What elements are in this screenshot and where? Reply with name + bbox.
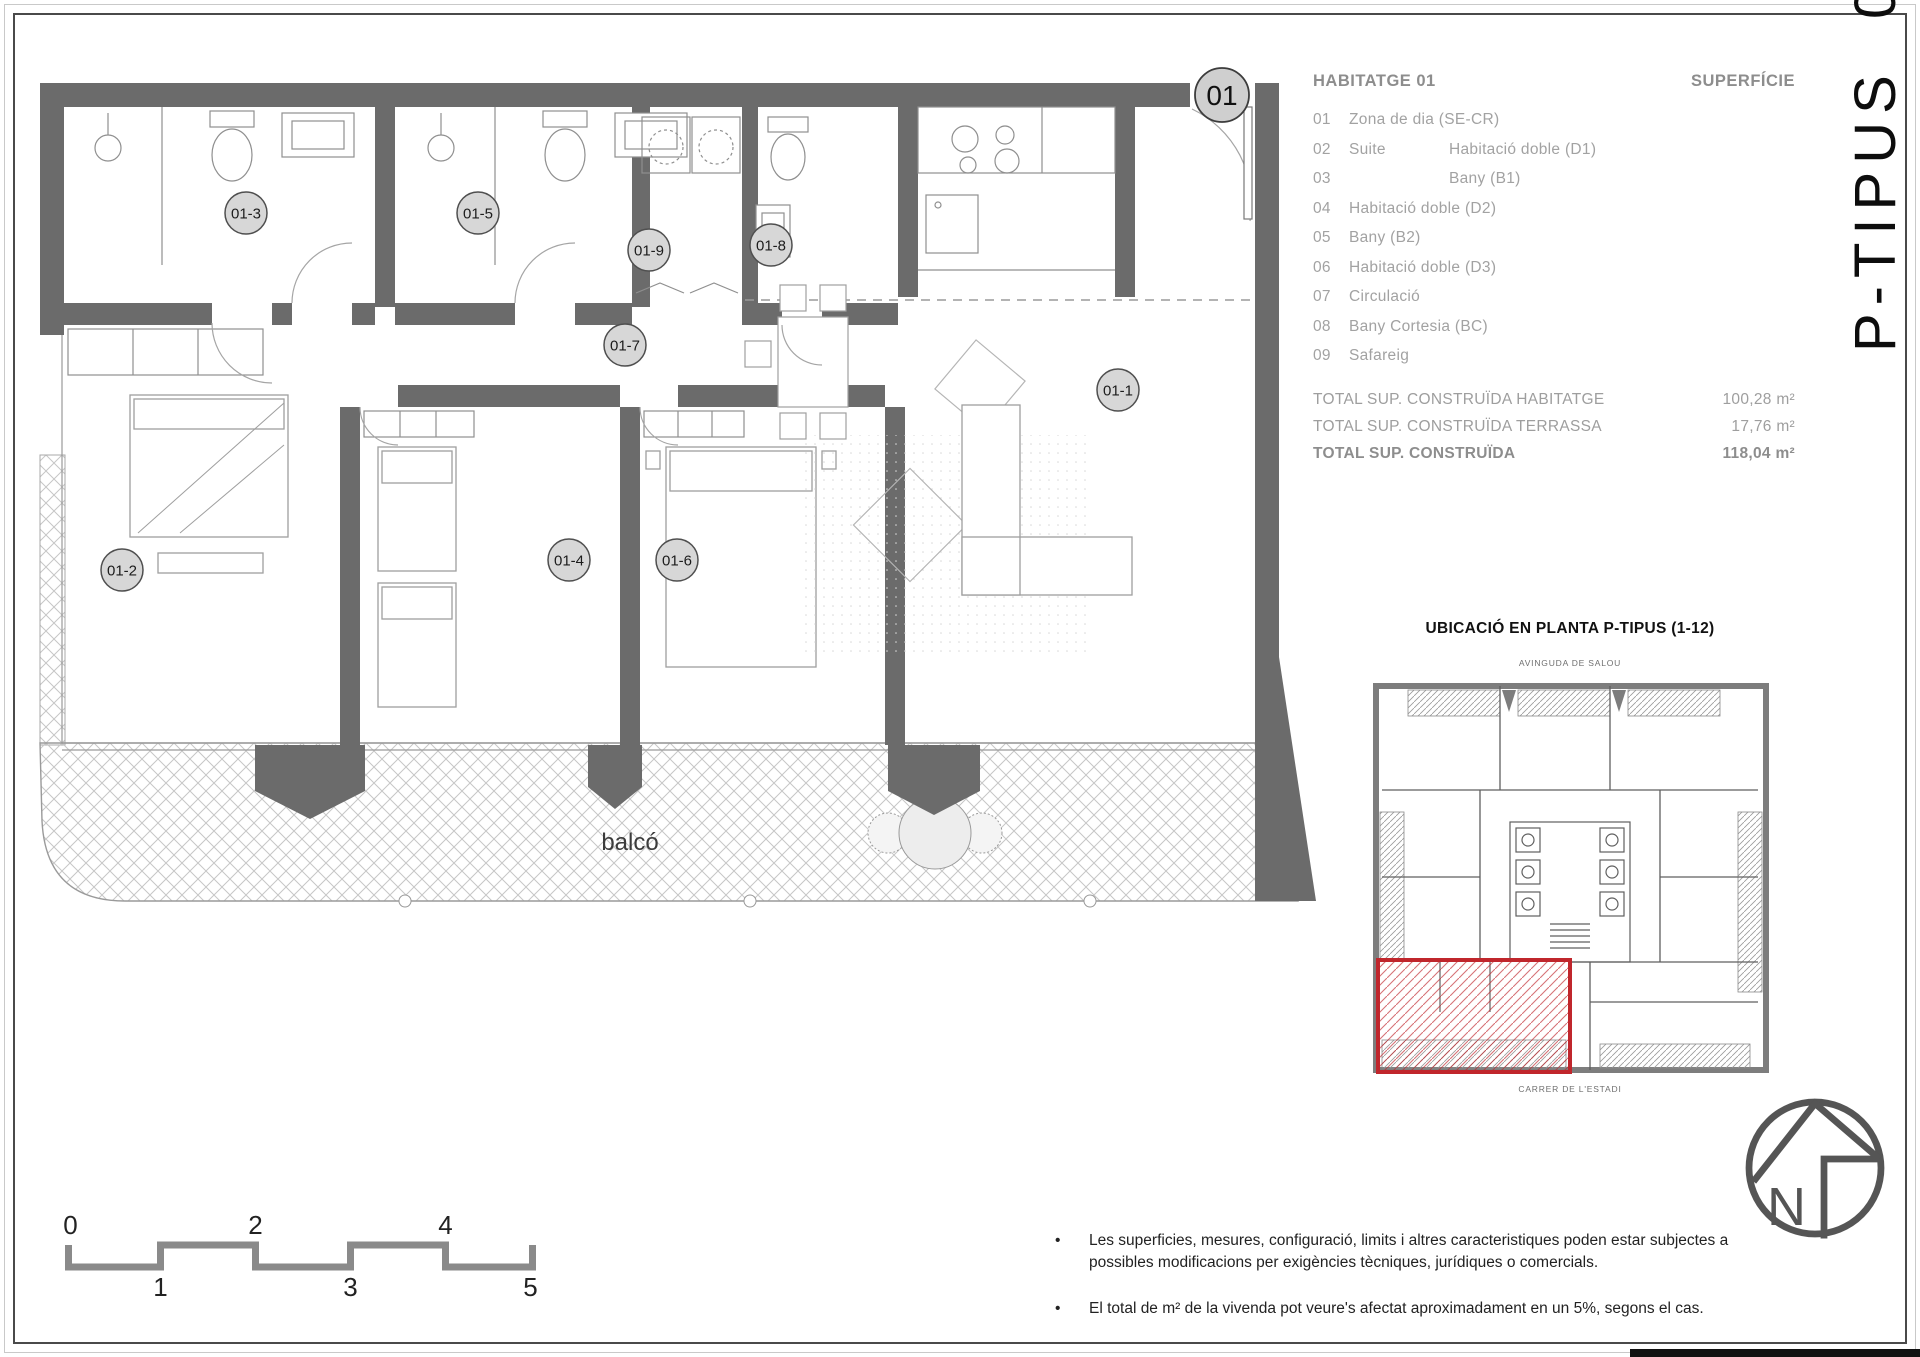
- item-num: 09: [1313, 347, 1349, 365]
- total-row-grand: TOTAL SUP. CONSTRUÏDA 118,04 m²: [1313, 445, 1795, 463]
- item-name: Habitació doble (D2): [1349, 200, 1449, 218]
- item-name: [1349, 170, 1449, 188]
- item-name2: [1449, 229, 1795, 247]
- item-num: 03: [1313, 170, 1349, 188]
- note-item: • Les superficies, mesures, configuració…: [1055, 1230, 1815, 1274]
- bottom-right-black-strip: [1630, 1349, 1920, 1357]
- legend-panel: HABITATGE 01 SUPERFÍCIE 01Zona de dia (S…: [1313, 72, 1795, 472]
- bedroom-d2-beds: [378, 447, 456, 707]
- legend-item: 05Bany (B2): [1313, 229, 1795, 247]
- superficie-header: SUPERFÍCIE: [1691, 72, 1795, 91]
- total-value: 118,04 m²: [1722, 445, 1795, 463]
- location-title: UBICACIÓ EN PLANTA P-TIPUS (1-12): [1350, 620, 1790, 638]
- room-tag: 01-4: [548, 539, 590, 581]
- item-name2: Bany (B1): [1449, 170, 1795, 188]
- room-tag-label: 01-5: [463, 205, 493, 222]
- legend-header: HABITATGE 01 SUPERFÍCIE: [1313, 72, 1795, 91]
- room-tag-label: 01-6: [662, 552, 692, 569]
- room-tag: 01-5: [457, 192, 499, 234]
- balcony-label: balcó: [601, 829, 658, 856]
- scale-bar-numbers: 0 2 4 1 3 5: [63, 1212, 537, 1302]
- highlighted-unit: [1378, 960, 1570, 1072]
- scale-num: 4: [438, 1212, 452, 1240]
- item-name2: [1449, 259, 1795, 277]
- room-tag: 01-2: [101, 549, 143, 591]
- item-name: Bany (B2): [1349, 229, 1449, 247]
- scale-num: 0: [63, 1212, 77, 1240]
- note-item: • El total de m² de la vivenda pot veure…: [1055, 1298, 1815, 1320]
- disclaimer-notes: • Les superficies, mesures, configuració…: [1055, 1230, 1815, 1344]
- legend-item: 08Bany Cortesia (BC): [1313, 318, 1795, 336]
- room-tag: 01-7: [604, 324, 646, 366]
- item-num: 04: [1313, 200, 1349, 218]
- room-tag: 01-8: [750, 224, 792, 266]
- room-tag-label: 01-7: [610, 337, 640, 354]
- item-name2: [1449, 347, 1795, 365]
- legend-item: 01Zona de dia (SE-CR): [1313, 111, 1795, 129]
- north-label: N: [1767, 1177, 1806, 1237]
- scale-bar-line: [69, 1245, 533, 1267]
- total-value: 100,28 m²: [1723, 391, 1796, 409]
- item-name2: [1449, 318, 1795, 336]
- railing-post: [744, 895, 756, 907]
- scale-num: 3: [343, 1272, 357, 1302]
- item-num: 06: [1313, 259, 1349, 277]
- location-mini-plan: [1360, 672, 1780, 1080]
- scale-num: 2: [248, 1212, 262, 1240]
- room-tag: 01-9: [628, 229, 670, 271]
- item-name2: [1449, 200, 1795, 218]
- apartment-floor-plan: 01-1 01-2 01-3 01-4 01-5 01-6 01-7 01-8: [30, 55, 1320, 915]
- room-tag-label: 01-3: [231, 205, 261, 222]
- sheet-title-vertical: P-TIPUS 01: [1842, 0, 1909, 352]
- total-label: TOTAL SUP. CONSTRUÏDA TERRASSA: [1313, 418, 1602, 436]
- item-name: Circulació: [1349, 288, 1449, 306]
- legend-item: 09Safareig: [1313, 347, 1795, 365]
- room-tag-label: 01-8: [756, 237, 786, 254]
- legend-item: 06Habitació doble (D3): [1313, 259, 1795, 277]
- note-text: El total de m² de la vivenda pot veure's…: [1089, 1298, 1789, 1320]
- total-row: TOTAL SUP. CONSTRUÏDA TERRASSA 17,76 m²: [1313, 418, 1795, 436]
- total-label: TOTAL SUP. CONSTRUÏDA: [1313, 445, 1515, 463]
- entry-unit-badge-label: 01: [1206, 80, 1237, 111]
- suite-bed: [130, 395, 288, 573]
- legend-items: 01Zona de dia (SE-CR) 02SuiteHabitació d…: [1313, 111, 1795, 365]
- item-name: Bany Cortesia (BC): [1349, 318, 1449, 336]
- legend-title: HABITATGE 01: [1313, 72, 1436, 91]
- legend-item: 02SuiteHabitació doble (D1): [1313, 141, 1795, 159]
- legend-totals: TOTAL SUP. CONSTRUÏDA HABITATGE 100,28 m…: [1313, 391, 1795, 463]
- room-tag-label: 01-9: [634, 242, 664, 259]
- item-num: 01: [1313, 111, 1349, 129]
- north-arrow-icon: N: [1740, 1093, 1890, 1243]
- room-tag: 01-3: [225, 192, 267, 234]
- total-value: 17,76 m²: [1731, 418, 1795, 436]
- legend-item: 07Circulació: [1313, 288, 1795, 306]
- floorplan-sheet: { "sheet": { "vertical_title": "P-TIPUS …: [0, 0, 1920, 1357]
- street-label-top: AVINGUDA DE SALOU: [1360, 658, 1780, 668]
- room-tag-label: 01-2: [107, 562, 137, 579]
- item-name2: [1449, 111, 1795, 129]
- bathroom-1-fixtures: [95, 107, 354, 265]
- room-tag-label: 01-1: [1103, 382, 1133, 399]
- item-name: Habitació doble (D3): [1349, 259, 1449, 277]
- railing-post: [1084, 895, 1096, 907]
- item-num: 05: [1313, 229, 1349, 247]
- item-num: 02: [1313, 141, 1349, 159]
- scale-num: 1: [153, 1272, 167, 1302]
- note-text: Les superficies, mesures, configuració, …: [1089, 1230, 1789, 1274]
- item-name: Zona de dia (SE-CR): [1349, 111, 1449, 129]
- room-tag-label: 01-4: [554, 552, 584, 569]
- legend-item: 03Bany (B1): [1313, 170, 1795, 188]
- scale-bar: 0 2 4 1 3 5: [58, 1212, 543, 1302]
- item-name2: [1449, 288, 1795, 306]
- railing-post: [399, 895, 411, 907]
- item-num: 07: [1313, 288, 1349, 306]
- bullet-icon: •: [1055, 1230, 1089, 1274]
- room-tag: 01-6: [656, 539, 698, 581]
- entry-unit-badge: 01: [1195, 68, 1249, 122]
- item-num: 08: [1313, 318, 1349, 336]
- kitchen-fixtures: [918, 107, 1115, 270]
- item-name2: Habitació doble (D1): [1449, 141, 1795, 159]
- item-name: Suite: [1349, 141, 1449, 159]
- street-label-bottom: CARRER DE L'ESTADI: [1360, 1084, 1780, 1094]
- room-tag: 01-1: [1097, 369, 1139, 411]
- legend-item: 04Habitació doble (D2): [1313, 200, 1795, 218]
- total-label: TOTAL SUP. CONSTRUÏDA HABITATGE: [1313, 391, 1605, 409]
- bullet-icon: •: [1055, 1298, 1089, 1320]
- living-dining-furniture: [745, 285, 1132, 655]
- item-name: Safareig: [1349, 347, 1449, 365]
- scale-num: 5: [523, 1272, 537, 1302]
- total-row: TOTAL SUP. CONSTRUÏDA HABITATGE 100,28 m…: [1313, 391, 1795, 409]
